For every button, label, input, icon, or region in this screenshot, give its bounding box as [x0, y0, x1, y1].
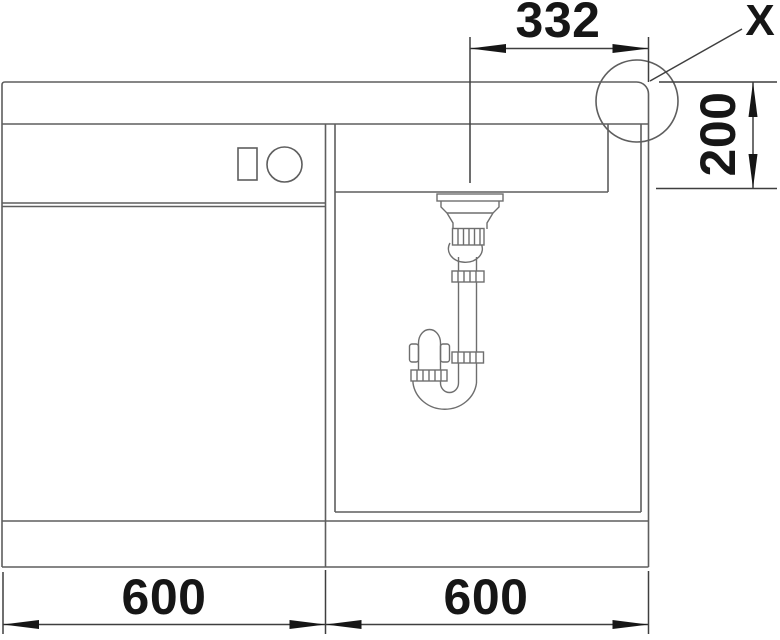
sink-cabinet — [335, 124, 649, 567]
control-knob-circle — [267, 147, 302, 182]
dim-label-200: 200 — [693, 92, 743, 177]
sink-bowl — [335, 124, 608, 192]
control-switch-rect — [238, 148, 257, 180]
drain-seal-ring — [448, 243, 482, 262]
drain-strainer — [437, 194, 503, 262]
dim-label-600-right: 600 — [444, 572, 529, 622]
countertop — [2, 82, 649, 124]
dim-label-332: 332 — [516, 0, 601, 45]
dimension-332 — [470, 37, 649, 183]
technical-drawing: 332 200 600 600 X — [0, 0, 780, 640]
siphon-trap — [410, 257, 485, 409]
dim-label-600-left: 600 — [122, 572, 207, 622]
drawing-canvas — [0, 0, 780, 640]
detail-leader-line — [650, 29, 742, 81]
detail-label-x: X — [745, 0, 774, 43]
left-cabinet — [2, 124, 326, 567]
